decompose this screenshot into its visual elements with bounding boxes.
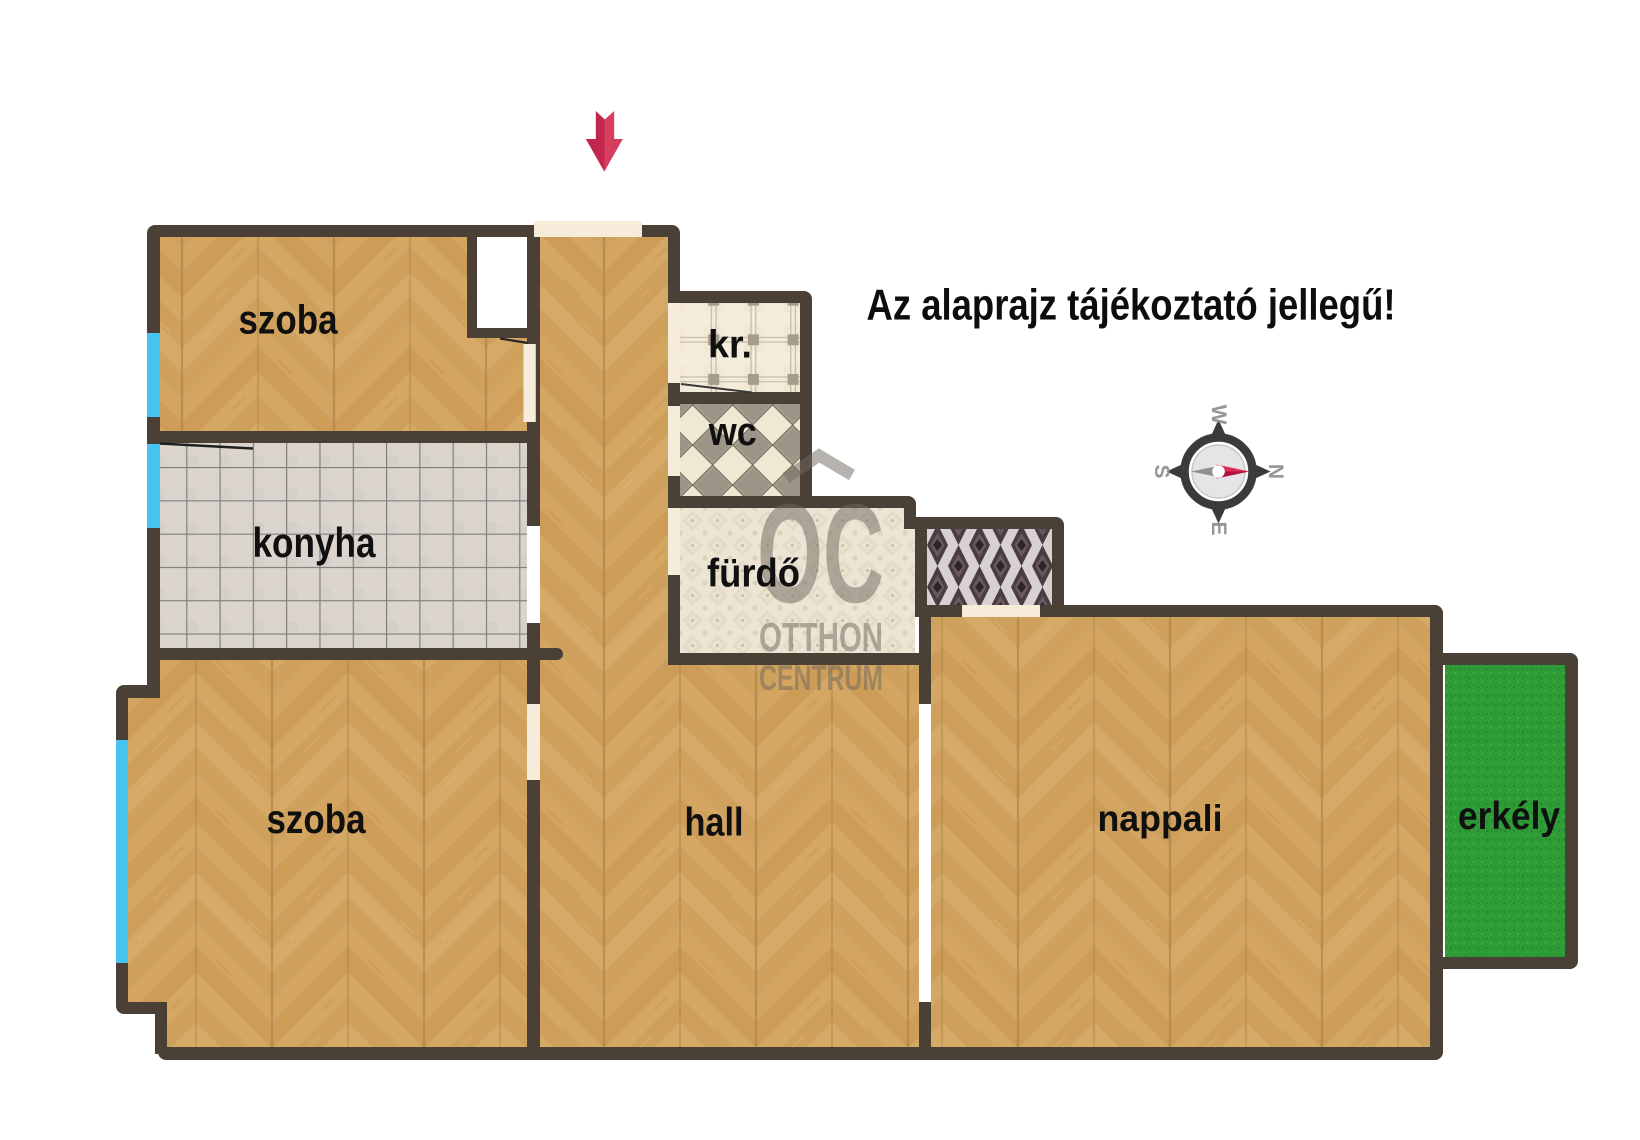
svg-text:E: E xyxy=(1207,521,1230,535)
svg-text:S: S xyxy=(1150,464,1173,478)
svg-text:kr.: kr. xyxy=(708,324,752,367)
svg-text:erkély: erkély xyxy=(1458,795,1560,838)
svg-text:hall: hall xyxy=(685,801,744,845)
svg-text:W: W xyxy=(1207,405,1230,425)
svg-text:fürdő: fürdő xyxy=(707,552,800,596)
svg-text:szoba: szoba xyxy=(239,297,339,343)
svg-text:nappali: nappali xyxy=(1098,798,1223,839)
svg-text:OTTHON: OTTHON xyxy=(759,614,883,660)
svg-text:Az alaprajz tájékoztató jelleg: Az alaprajz tájékoztató jellegű! xyxy=(867,281,1396,330)
svg-text:CENTRUM: CENTRUM xyxy=(759,659,883,698)
svg-text:konyha: konyha xyxy=(253,519,377,566)
svg-text:wc: wc xyxy=(708,410,757,454)
svg-text:N: N xyxy=(1264,464,1287,479)
svg-text:szoba: szoba xyxy=(267,796,367,842)
